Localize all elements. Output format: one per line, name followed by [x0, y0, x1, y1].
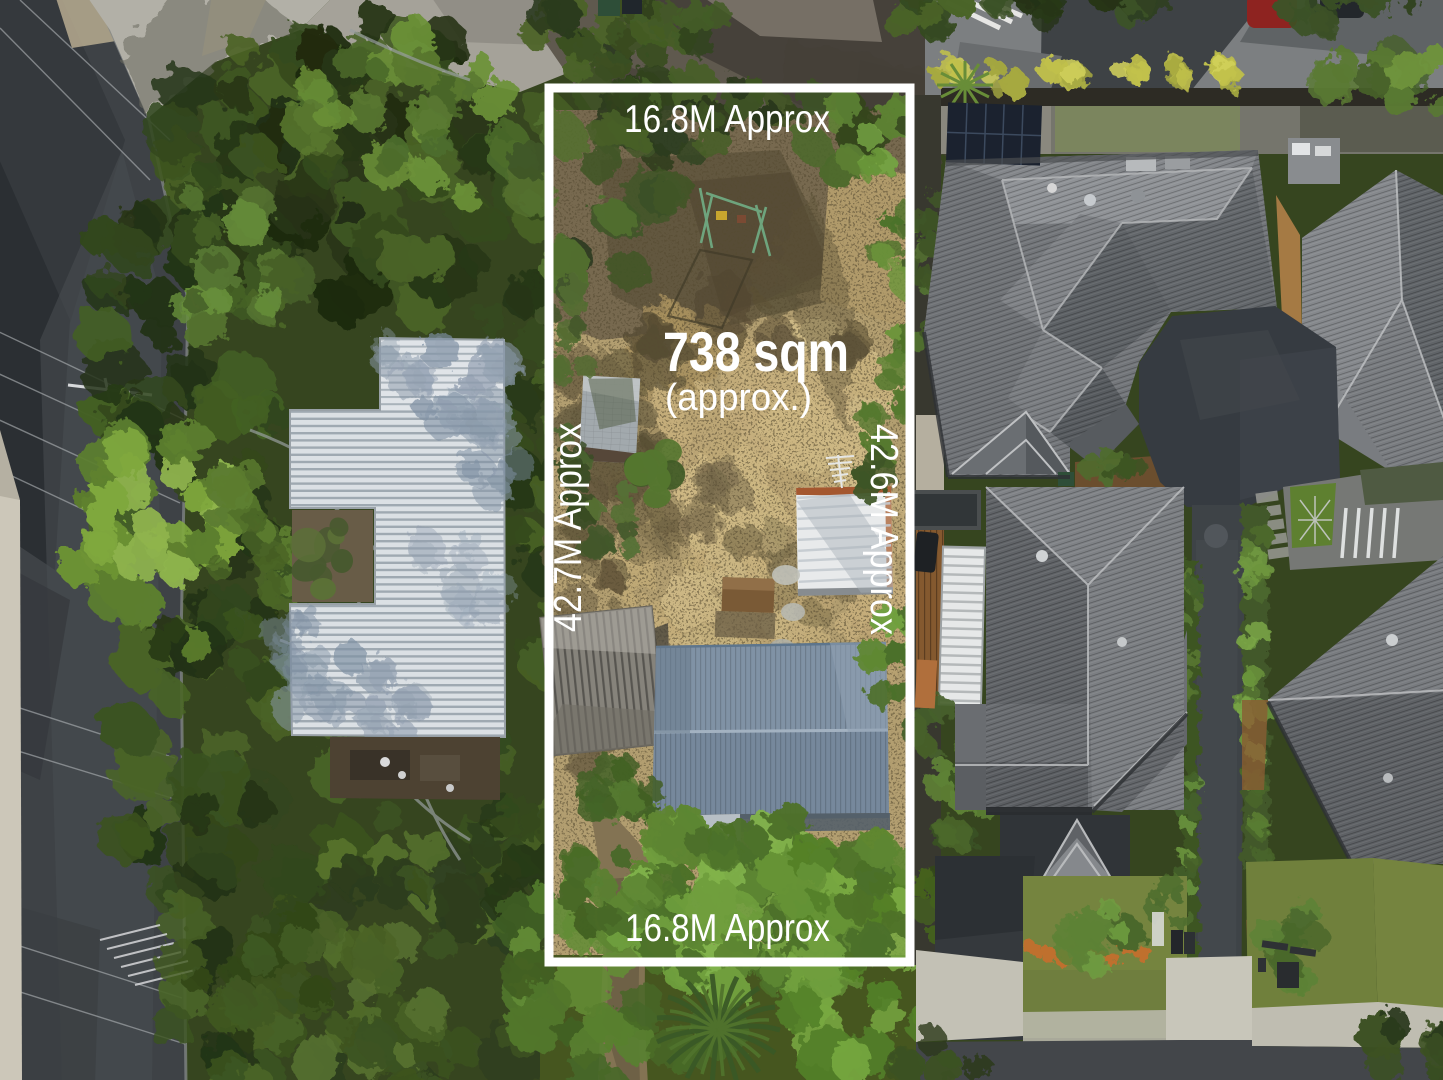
svg-text:42.7M Approx: 42.7M Approx	[547, 423, 590, 632]
svg-text:42.6M Approx: 42.6M Approx	[862, 424, 905, 635]
svg-text:(approx.): (approx.)	[665, 377, 812, 419]
svg-text:16.8M Approx: 16.8M Approx	[625, 907, 830, 950]
svg-text:16.8M Approx: 16.8M Approx	[624, 98, 830, 141]
svg-text:738 sqm: 738 sqm	[663, 320, 849, 383]
